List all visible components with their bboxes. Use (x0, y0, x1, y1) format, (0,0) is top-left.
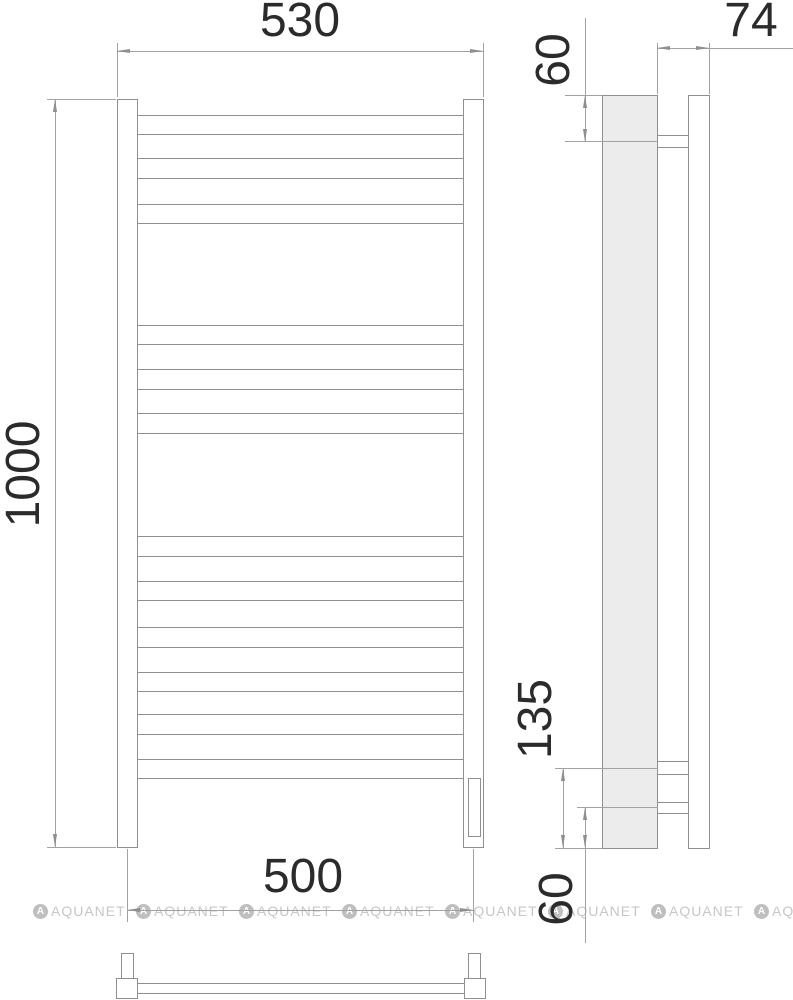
dim-label-height: 1000 (0, 421, 48, 528)
watermark-text: AQUANET (154, 903, 229, 919)
ext-74-left (657, 43, 658, 94)
dim-label-side-top-offset: 60 (530, 33, 578, 86)
dim-530 (117, 51, 483, 52)
ext-bracket-mid (555, 768, 658, 769)
front-rung-4 (137, 325, 464, 345)
side-rail-profile (602, 95, 658, 849)
front-rung-3 (137, 204, 464, 224)
front-right-post (463, 99, 484, 848)
side-bracket-mid (657, 761, 689, 775)
dim-500 (127, 910, 473, 911)
dim-label-side-bracket-offset: 135 (512, 679, 560, 759)
plan-right-post (464, 978, 486, 999)
arrow-135-top (561, 768, 565, 781)
watermark-text: AQUANET (772, 903, 793, 919)
front-rung-8 (137, 581, 464, 601)
ext-bracket-top (565, 141, 658, 142)
watermark-aquanet: AAQUANET (445, 903, 538, 919)
watermark-text: AQUANET (360, 903, 435, 919)
arrow-60t-top (583, 95, 587, 108)
watermark-aquanet: AAQUANET (239, 903, 332, 919)
arrow-74-right (696, 46, 709, 50)
aquanet-logo-icon: A (754, 904, 769, 919)
side-bracket-top (657, 135, 689, 148)
ext-side-bottom (555, 848, 602, 849)
arrow-500-right (460, 908, 473, 912)
arrow-1000-top (53, 99, 57, 112)
front-rung-11 (137, 714, 464, 735)
watermark-text: AQUANET (257, 903, 332, 919)
heating-element (468, 778, 481, 837)
dim-label-top-width: 530 (260, 0, 340, 45)
dim-label-bottom-width: 500 (263, 853, 343, 901)
front-rung-9 (137, 627, 464, 648)
arrow-530-left (117, 49, 130, 53)
aquanet-logo-icon: A (33, 904, 48, 919)
dim-label-side-depth: 74 (724, 0, 777, 45)
arrow-1000-bottom (53, 834, 57, 847)
side-bracket-bottom (657, 802, 689, 814)
dim-label-side-bottom-offset: 60 (533, 872, 581, 925)
towel-rail-technical-drawing: AAQUANETAAQUANETAAQUANETAAQUANETAAQUANET… (0, 0, 793, 1000)
arrow-74-left (657, 46, 670, 50)
dim-74 (657, 48, 793, 49)
front-rung-7 (137, 536, 464, 557)
watermark-aquanet: AAQUANET (342, 903, 435, 919)
watermark-text: AQUANET (669, 903, 744, 919)
front-left-post (117, 99, 138, 848)
arrow-60b-bottom (583, 835, 587, 848)
front-rung-2 (137, 158, 464, 179)
watermark-text: AQUANET (51, 903, 126, 919)
aquanet-logo-icon: A (342, 904, 357, 919)
plan-left-post (116, 978, 138, 999)
arrow-60b-top (583, 807, 587, 820)
dim-1000 (55, 99, 56, 847)
front-rung-10 (137, 672, 464, 692)
ext-74-right (709, 43, 710, 94)
front-rung-12 (137, 759, 464, 779)
plan-right-bracket (468, 953, 481, 979)
ext-500-right (473, 849, 474, 922)
plan-left-bracket (121, 953, 134, 979)
arrow-135-bottom (561, 835, 565, 848)
watermark-text: AQUANET (463, 903, 538, 919)
watermark-aquanet: AAQUANET (651, 903, 744, 919)
watermark-aquanet: AAQUANET (136, 903, 229, 919)
aquanet-logo-icon: A (445, 904, 460, 919)
watermark-aquanet: AAQUANET (754, 903, 793, 919)
dim-60-bottom (585, 807, 586, 943)
front-rung-6 (137, 413, 464, 434)
side-wall-plate (688, 95, 710, 849)
ext-1000-top (47, 99, 116, 100)
plan-top-rung (137, 983, 465, 994)
arrow-60t-bottom (583, 129, 587, 142)
ext-bracket-bottom (577, 807, 658, 808)
front-rung-5 (137, 369, 464, 390)
aquanet-logo-icon: A (651, 904, 666, 919)
front-rung-1 (137, 115, 464, 135)
aquanet-logo-icon: A (239, 904, 254, 919)
watermark-aquanet: AAQUANET (33, 903, 126, 919)
arrow-530-right (470, 49, 483, 53)
ext-530-right (483, 43, 484, 97)
dim-60-top (585, 18, 586, 142)
arrow-500-left (127, 908, 140, 912)
ext-1000-bottom (47, 847, 116, 848)
